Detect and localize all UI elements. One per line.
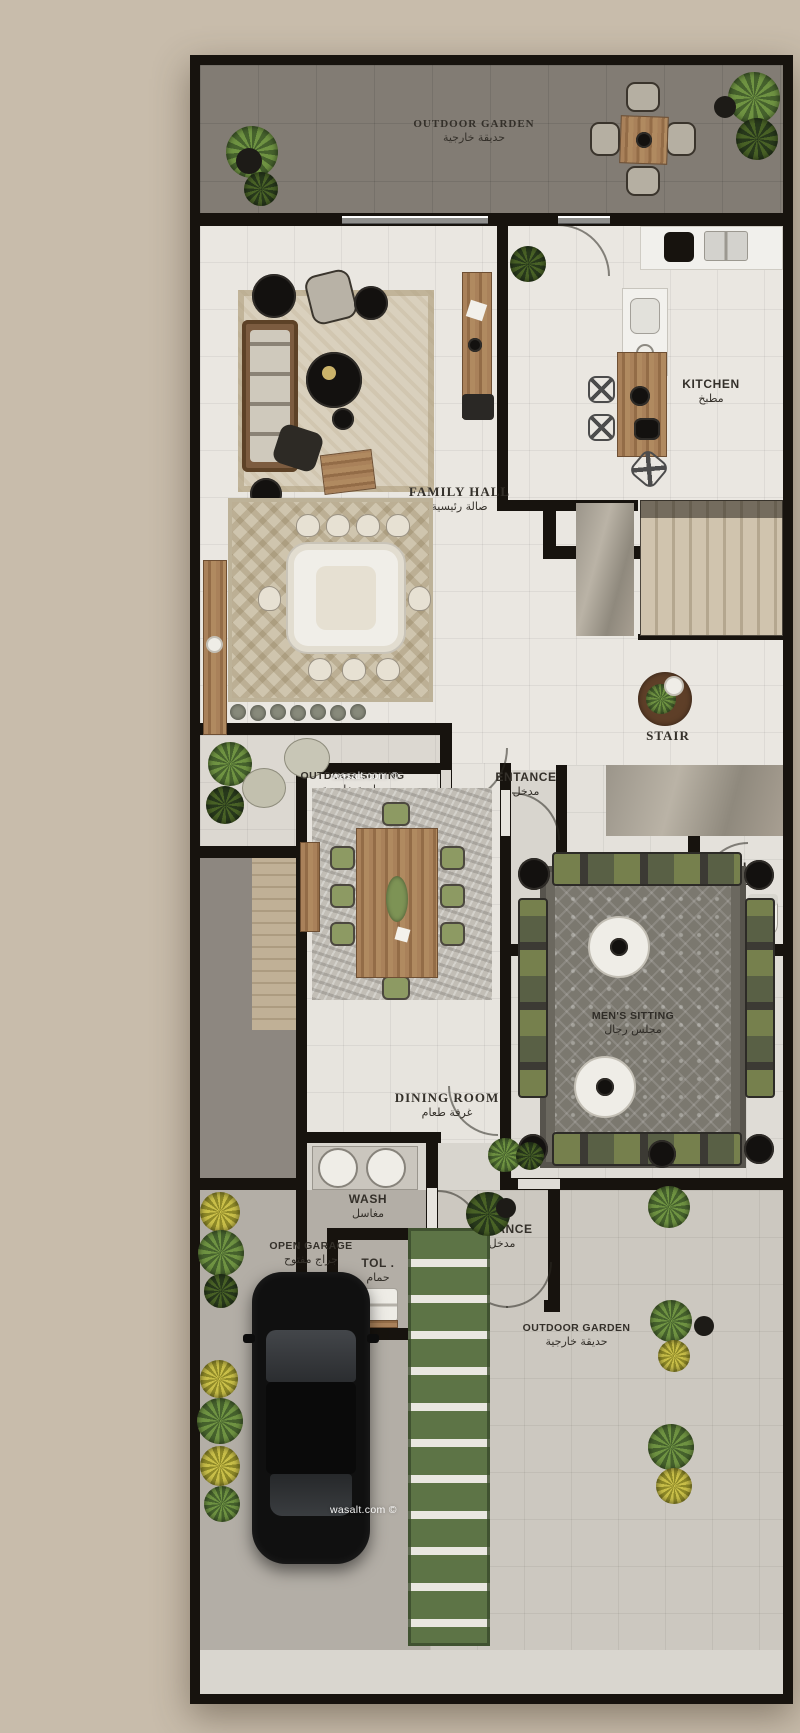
garden-top-plant-small-icon — [244, 172, 278, 206]
outer-wall-right — [783, 55, 793, 1704]
mens-table-2-decor — [596, 1078, 614, 1096]
dining-room-chair-l3 — [330, 922, 355, 946]
entrance-lower-sill-right — [544, 1300, 560, 1312]
dining-chair-right — [408, 586, 431, 611]
dining-chair-t1 — [296, 514, 320, 537]
room-label-outdoor-garden-bottom-en: OUTDOOR GARDEN — [514, 1322, 639, 1335]
garage-plant-2-icon — [198, 1230, 244, 1276]
dining-chair-t3 — [356, 514, 380, 537]
island-sink — [630, 298, 660, 334]
car-mirror-left — [243, 1334, 255, 1343]
mens-sofa-right — [745, 898, 775, 1098]
hall-tray-table — [320, 449, 376, 495]
mens-corner-table-tr — [744, 860, 774, 890]
bottom-walk-strip — [200, 1650, 783, 1694]
garage-plant-3-icon — [204, 1274, 238, 1308]
garden-table-chair-right — [666, 122, 696, 156]
outer-wall-bottom — [190, 1694, 793, 1704]
garage-plant-4-icon — [200, 1360, 238, 1398]
wood-deck — [252, 858, 298, 1030]
room-label-open-garage-ar: جراج مفتوح — [256, 1253, 366, 1266]
dining-room-chair-l2 — [330, 884, 355, 908]
garden-right-plant-3-icon — [658, 1340, 690, 1372]
car-roof — [266, 1382, 356, 1474]
sideboard-decor-bowl — [468, 338, 482, 352]
garden-top-right-plant2-icon — [736, 118, 778, 160]
stair-treads — [640, 500, 783, 636]
hall-printer-unit — [462, 394, 494, 420]
garden-top-right-plant-icon — [728, 72, 780, 124]
room-label-entrance-upper-en: ENTANCE — [476, 770, 576, 785]
room-label-mens-sitting-ar: مجلس رجال — [568, 1023, 698, 1036]
sitting-pouf-2 — [242, 768, 286, 808]
garden-table-chair-left — [590, 122, 620, 156]
room-label-dining-room: DINING ROOM غرفة طعام — [387, 1090, 507, 1119]
garden-table-centerpiece — [636, 132, 652, 148]
room-label-mens-sitting-en: MEN'S SITTING — [568, 1010, 698, 1023]
garden-table-chair-bottom — [626, 166, 660, 196]
room-label-wash-lower-en: WASH — [328, 1192, 408, 1207]
stair-landing-marble — [576, 503, 634, 636]
dining-room-chair-top — [382, 802, 410, 826]
garden-top-plant-pot — [236, 148, 262, 174]
outer-wall-top — [190, 55, 793, 65]
island-decor-tray — [634, 418, 660, 440]
room-label-stair: STAIR — [628, 728, 708, 744]
mens-sofa-bottom — [552, 1132, 742, 1166]
outdoor-sitting-top-wall — [200, 723, 452, 735]
room-label-outdoor-garden-bottom: OUTDOOR GARDEN حديقة خارجية — [514, 1322, 639, 1348]
screenshot-root: { "watermark": { "text": "wasalt.com ©" … — [0, 0, 800, 1733]
dining-chair-left — [258, 586, 281, 611]
garden-stepping-path — [408, 1228, 490, 1646]
hedge-bush-7 — [350, 704, 366, 720]
coffee-table-decor — [322, 366, 336, 380]
hall-corner-plant-icon — [510, 246, 546, 282]
dining-chair-b3 — [376, 658, 400, 681]
room-label-outdoor-garden-bottom-ar: حديقة خارجية — [514, 1335, 639, 1348]
car-mirror-right — [367, 1334, 379, 1343]
armchair-round-1 — [252, 274, 296, 318]
dining-room-chair-bottom — [382, 976, 410, 1000]
dining-table-plant — [386, 876, 408, 922]
hedge-bush-1 — [230, 704, 246, 720]
dining-chair-b1 — [308, 658, 332, 681]
coffee-table-small — [332, 408, 354, 430]
garden-right-plant-4-icon — [648, 1424, 694, 1470]
room-label-wash-lower-ar: مغاسل — [328, 1207, 408, 1220]
room-label-wash-lower: WASH مغاسل — [328, 1192, 408, 1220]
stair-table-plate — [664, 676, 684, 696]
garden-separator-wall — [200, 213, 783, 226]
mens-center-table-dark — [648, 1140, 676, 1168]
mens-bottom-door-gap — [518, 1179, 560, 1189]
room-label-dining-room-ar: غرفة طعام — [387, 1106, 507, 1119]
garage-plant-7-icon — [204, 1486, 240, 1522]
wash-lower-basin-1 — [318, 1148, 358, 1188]
path-top-plant-pot — [496, 1198, 516, 1218]
room-label-outdoor-garden-top-en: OUTDOOR GARDEN — [413, 118, 535, 131]
sliding-door-hall — [342, 216, 488, 224]
stove-cooktop — [664, 232, 694, 262]
coffee-table-main — [306, 352, 362, 408]
armchair-round-2 — [354, 286, 388, 320]
hedge-bush-5 — [310, 704, 326, 720]
car-windshield — [266, 1330, 356, 1382]
car — [252, 1272, 370, 1564]
dining-bottom-wall — [296, 1132, 441, 1143]
room-label-kitchen: KITCHEN مطبخ — [651, 377, 771, 405]
garden-top-right-plant-pot — [714, 96, 736, 118]
dining-room-chair-r2 — [440, 884, 465, 908]
dining-chair-t2 — [326, 514, 350, 537]
mens-corner-table-tl — [518, 858, 550, 890]
garage-plant-6-icon — [200, 1446, 240, 1486]
dining-room-console — [300, 842, 320, 932]
island-decor-bowl — [630, 386, 650, 406]
room-label-open-garage-en: OPEN GARAGE — [256, 1240, 366, 1253]
dining-chair-t4 — [386, 514, 410, 537]
hedge-bush-6 — [330, 705, 346, 721]
garage-plant-5-icon — [197, 1398, 243, 1444]
wash-lower-door-gap — [427, 1188, 437, 1228]
room-label-open-garage: OPEN GARAGE جراج مفتوح — [256, 1240, 366, 1266]
corridor-garage-wall — [200, 1178, 296, 1190]
outer-wall-left — [190, 55, 200, 1704]
kitchen-left-wall — [497, 222, 508, 511]
mens-sofa-left — [518, 898, 548, 1098]
wash-lower-basin-2 — [366, 1148, 406, 1188]
garden-right-pot — [694, 1316, 714, 1336]
stair-landing-shadow — [640, 500, 783, 518]
room-label-stair-en: STAIR — [628, 728, 708, 744]
garden-right-plant-5-icon — [656, 1468, 692, 1504]
dining-room-chair-l1 — [330, 846, 355, 870]
watermark-upper: wasalt.com © — [332, 770, 399, 782]
garage-plant-1-icon — [200, 1192, 240, 1232]
kitchen-stool-1 — [588, 376, 615, 403]
room-label-mens-sitting: MEN'S SITTING مجلس رجال — [568, 1010, 698, 1036]
hedge-bush-2 — [250, 705, 266, 721]
wash-closet-marble — [606, 765, 783, 836]
sliding-door-kitchen — [558, 216, 610, 224]
garden-right-plant-1-icon — [648, 1186, 690, 1228]
dining-room-chair-r3 — [440, 922, 465, 946]
kitchen-sink-double — [704, 231, 748, 261]
room-label-kitchen-ar: مطبخ — [651, 392, 771, 405]
hedge-bush-3 — [270, 704, 286, 720]
garden-table-chair-top — [626, 82, 660, 112]
dining-table-runner — [316, 566, 376, 630]
mens-table-1-decor — [610, 938, 628, 956]
hedge-bush-4 — [290, 705, 306, 721]
room-label-outdoor-garden-top-ar: حديقة خارجية — [413, 131, 535, 144]
kitchen-stool-2 — [588, 414, 615, 441]
sitting-plant-2-icon — [206, 786, 244, 824]
console-flower-pot — [206, 636, 223, 653]
mens-corner-table-br — [744, 1134, 774, 1164]
room-label-kitchen-en: KITCHEN — [651, 377, 771, 392]
mens-sofa-top — [552, 852, 742, 886]
dining-room-chair-r1 — [440, 846, 465, 870]
garden-right-plant-2-icon — [650, 1300, 692, 1342]
room-label-dining-room-en: DINING ROOM — [387, 1090, 507, 1106]
entry-planter2-icon — [516, 1142, 544, 1170]
dining-chair-b2 — [342, 658, 366, 681]
room-label-outdoor-garden-top: OUTDOOR GARDEN حديقة خارجية — [413, 118, 535, 145]
watermark-lower: wasalt.com © — [330, 1504, 397, 1516]
